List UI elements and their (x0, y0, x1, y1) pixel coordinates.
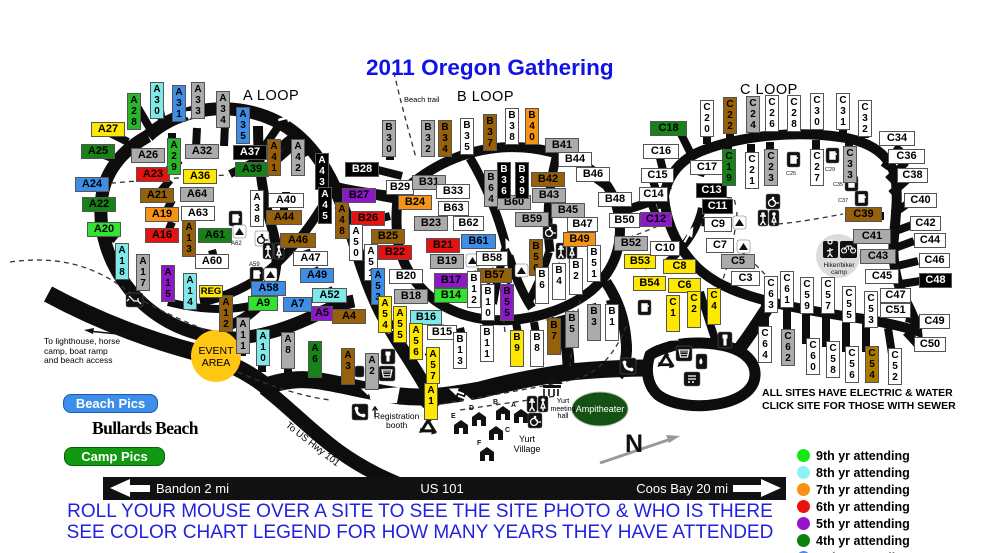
svg-text:Coos Bay 20 mi: Coos Bay 20 mi (636, 481, 728, 496)
svg-text:E: E (451, 413, 456, 420)
svg-text:Ampitheater: Ampitheater (576, 404, 625, 414)
svg-text:F: F (477, 440, 482, 447)
svg-text:C: C (505, 427, 510, 434)
svg-text:B: B (493, 399, 498, 406)
svg-text:C35: C35 (833, 182, 843, 188)
svg-text:D: D (469, 405, 474, 412)
svg-text:N: N (625, 430, 643, 458)
svg-text:A: A (511, 402, 516, 409)
svg-text:C29: C29 (825, 167, 835, 173)
svg-text:Bandon 2 mi: Bandon 2 mi (156, 481, 229, 496)
svg-text:C25: C25 (786, 171, 796, 177)
svg-text:A62: A62 (231, 241, 242, 247)
svg-text:camp: camp (831, 269, 847, 276)
svg-text:C37: C37 (838, 198, 848, 204)
svg-text:US 101: US 101 (420, 481, 463, 496)
svg-text:Hiker/biker: Hiker/biker (823, 262, 855, 269)
